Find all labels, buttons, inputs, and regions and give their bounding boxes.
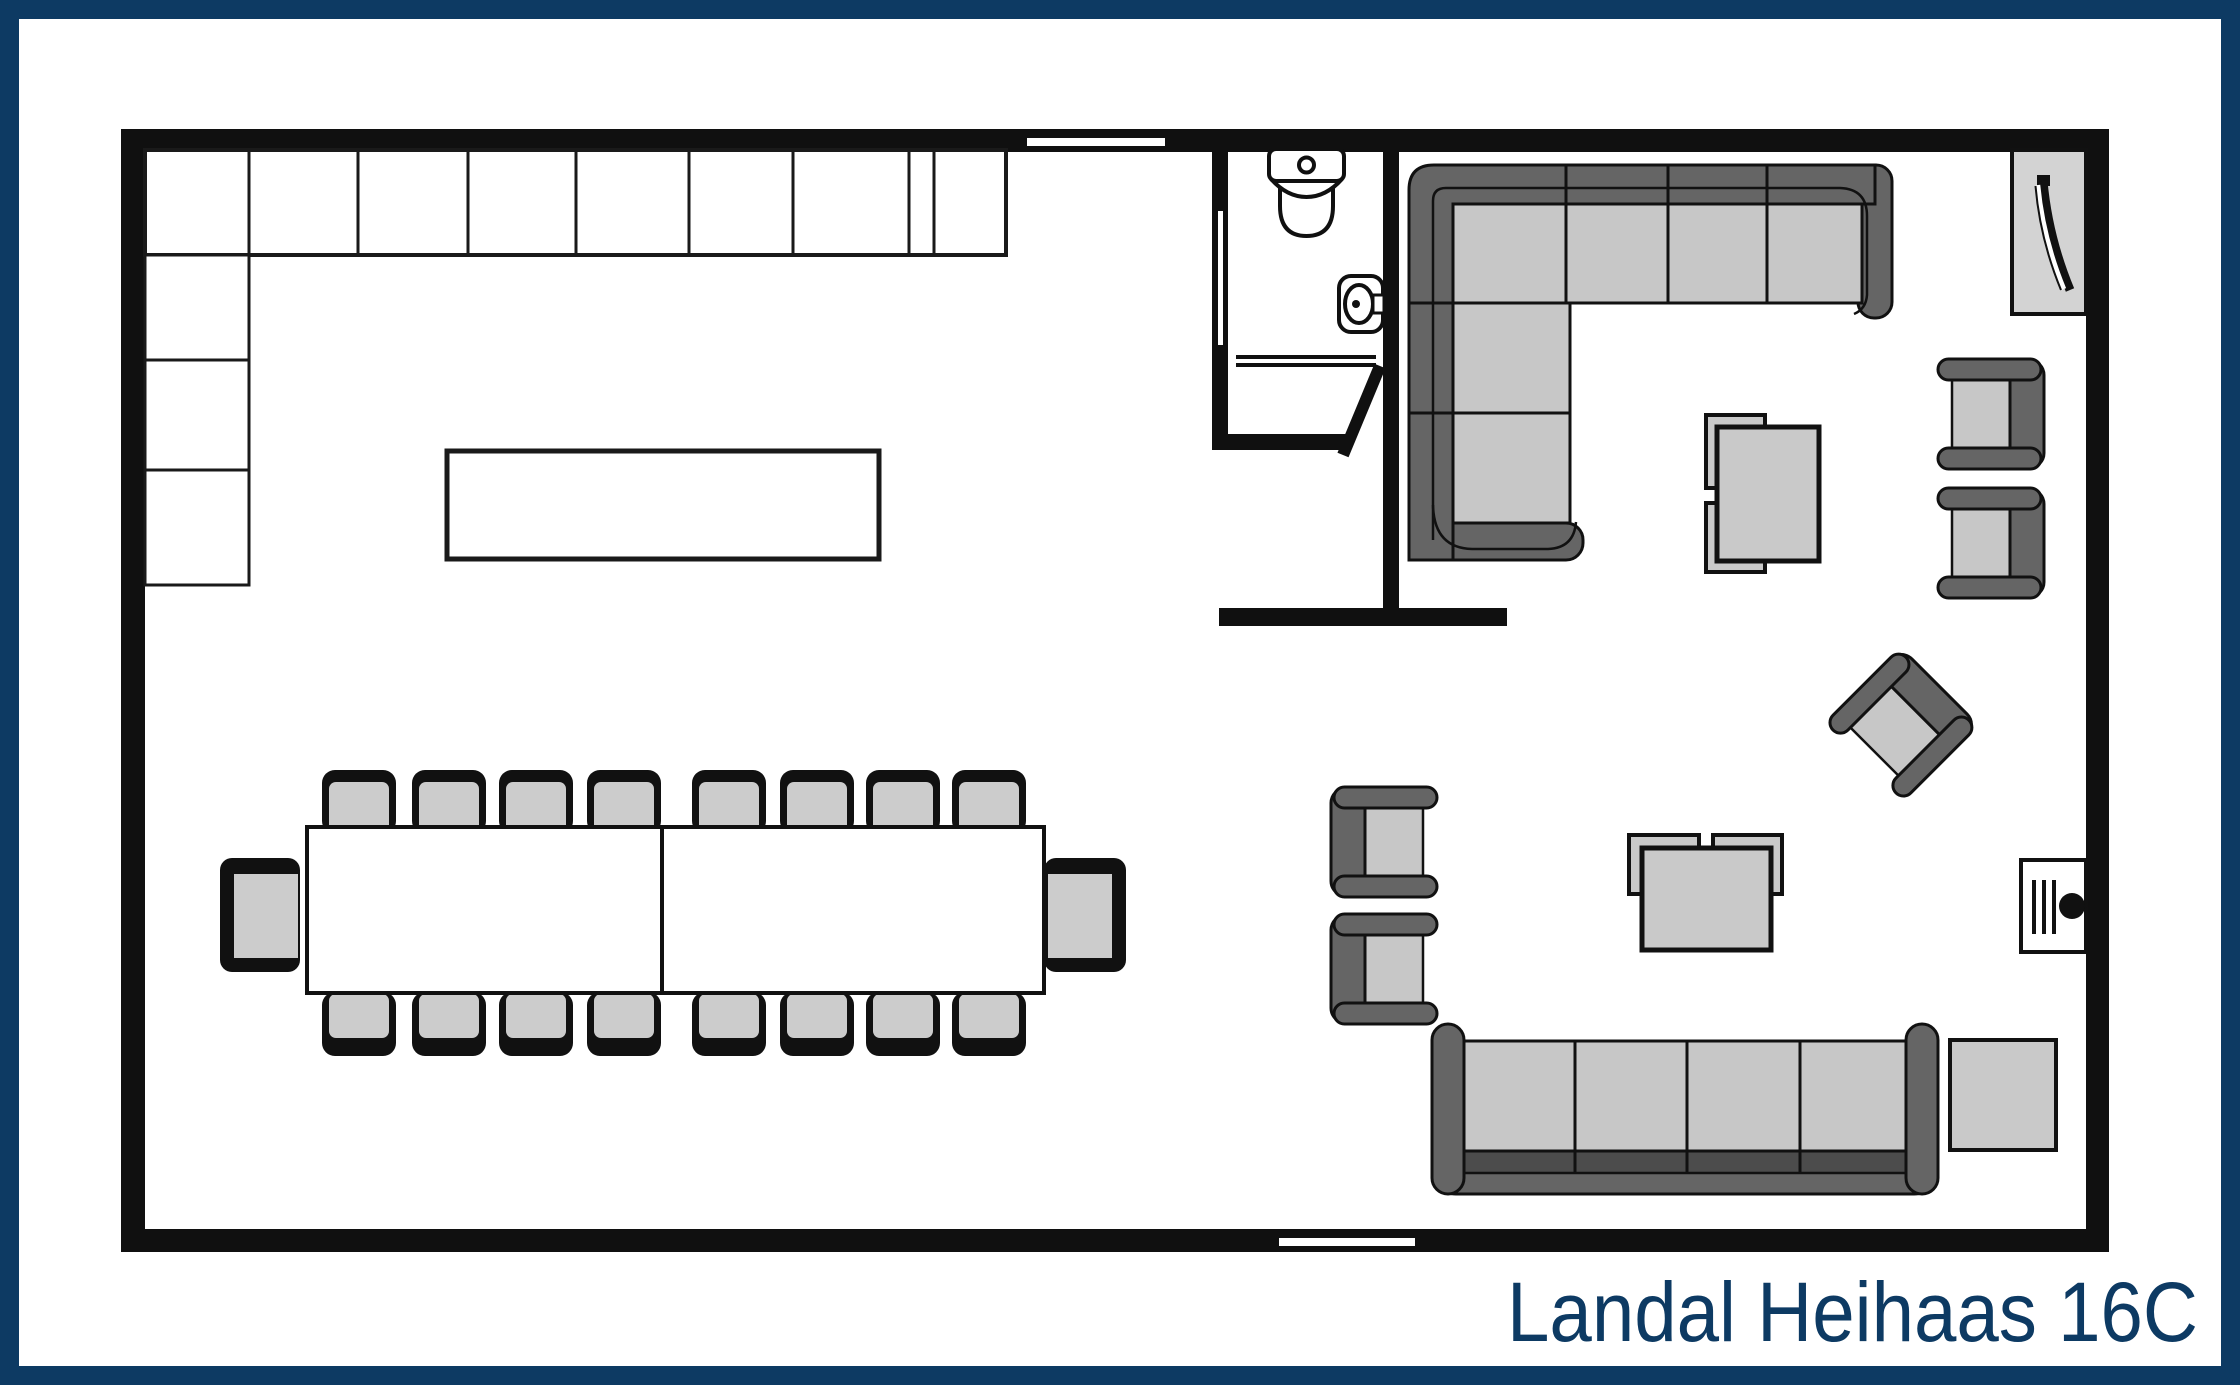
svg-text:Landal Heihaas 16C: Landal Heihaas 16C (1507, 1265, 2198, 1359)
